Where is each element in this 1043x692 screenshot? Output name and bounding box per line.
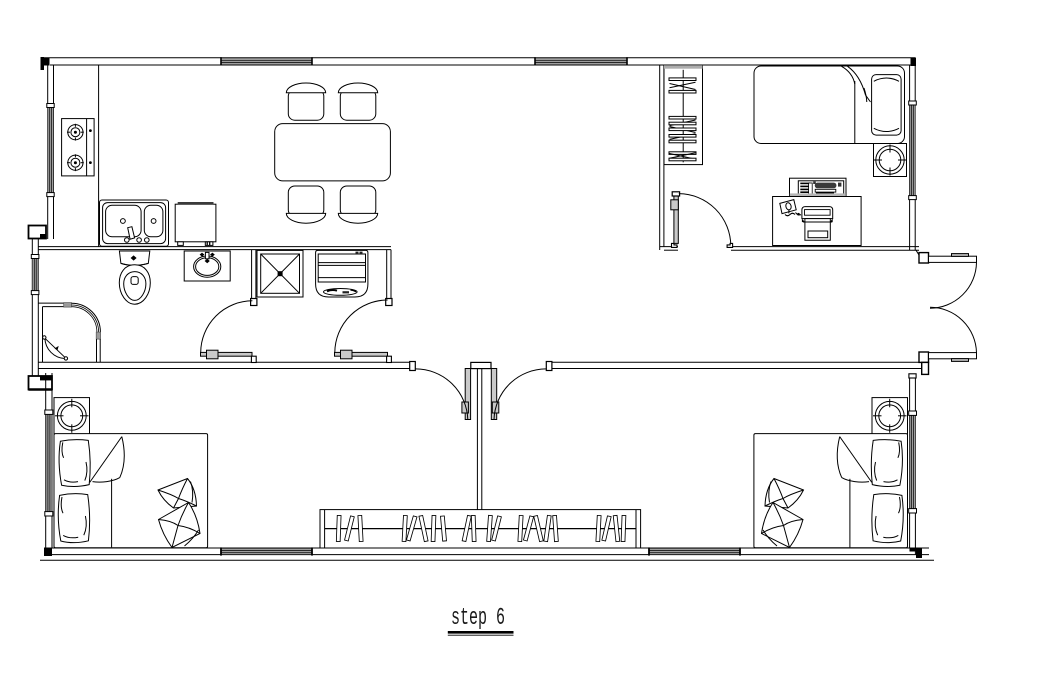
svg-text:step 6: step 6 [451,605,505,632]
